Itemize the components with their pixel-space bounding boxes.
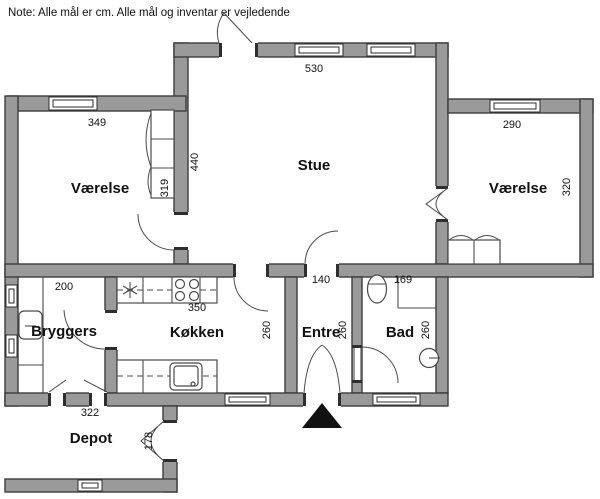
room-label-entre: Entre xyxy=(302,324,340,341)
door-arc-entre-stue xyxy=(305,231,338,264)
room-label-depot: Depot xyxy=(70,430,113,447)
window-icon xyxy=(6,285,17,307)
window-icon xyxy=(6,335,17,357)
opening-bryggers-koekken xyxy=(104,310,118,350)
room-label-bad: Bad xyxy=(386,324,414,341)
jamb xyxy=(163,420,177,423)
jamb xyxy=(436,219,448,222)
room-label-koekken: Køkken xyxy=(170,324,224,341)
jamb xyxy=(174,212,188,215)
jamb xyxy=(338,393,341,406)
toilet-icon xyxy=(368,275,387,303)
jamb xyxy=(89,393,92,406)
dim-vest-width: 349 xyxy=(88,117,106,129)
wardrobe-icon xyxy=(448,236,500,265)
wall-stue-right xyxy=(436,43,448,264)
dim-bad-height: 260 xyxy=(420,321,432,339)
floor-plan: Note: Alle mål er cm. Alle mål og invent… xyxy=(0,0,600,499)
opening-stue-top-door xyxy=(219,42,258,58)
jamb xyxy=(105,310,117,313)
jamb xyxy=(303,393,306,406)
jamb xyxy=(48,393,51,406)
dim-bryggers-width: 200 xyxy=(55,281,73,293)
door-arc-front xyxy=(304,345,340,393)
jamb xyxy=(352,380,362,383)
wall-outer-left xyxy=(5,96,18,406)
window-icon xyxy=(490,100,540,112)
jamb xyxy=(104,393,107,406)
jamb xyxy=(436,186,448,189)
window-icon xyxy=(78,480,102,491)
door-arc-bad xyxy=(362,347,398,383)
room-label-vaerelse-vest: Værelse xyxy=(71,180,129,197)
door-arc-vest xyxy=(138,214,174,250)
dim-oest-width: 290 xyxy=(503,119,521,131)
window-icon xyxy=(225,394,270,405)
window-icon xyxy=(295,44,343,56)
dim-bad-width: 169 xyxy=(394,274,412,286)
dim-stue-width: 530 xyxy=(305,63,323,75)
jamb xyxy=(266,264,269,277)
floor-plan-svg: Note: Alle mål er cm. Alle mål og invent… xyxy=(0,0,600,499)
dim-oest-height: 320 xyxy=(561,178,573,196)
jamb xyxy=(219,43,222,57)
opening-koekken-stue xyxy=(233,263,269,278)
jamb xyxy=(336,264,339,277)
opening-entre-bad xyxy=(355,345,360,383)
opening-oest-door xyxy=(435,186,449,222)
door-leaf-depot-2 xyxy=(84,380,107,392)
jamb xyxy=(233,264,236,277)
jamb xyxy=(63,393,66,406)
kitchen-counter-top xyxy=(117,277,217,303)
wall-bad-right xyxy=(436,277,448,393)
dim-vest-height: 319 xyxy=(159,179,171,197)
window-icon xyxy=(367,44,415,56)
door-arc-koekken xyxy=(234,277,268,311)
jamb xyxy=(174,247,188,250)
jamb xyxy=(255,43,258,57)
wall-koekken-entre xyxy=(285,277,297,393)
dim-stue-height: 440 xyxy=(189,153,201,171)
opening-vest-door xyxy=(173,212,189,250)
jamb xyxy=(304,264,307,277)
dim-depot-door: 178 xyxy=(143,432,155,450)
window-icon xyxy=(373,394,420,405)
room-label-stue: Stue xyxy=(298,157,331,174)
dim-entre-width: 140 xyxy=(312,274,330,286)
opening-depot-door xyxy=(162,420,178,462)
dim-depot-width: 322 xyxy=(81,407,99,419)
window-icon xyxy=(49,97,97,110)
room-label-vaerelse-oest: Værelse xyxy=(489,180,547,197)
dim-entre-height: 260 xyxy=(337,321,349,339)
room-label-bryggers: Bryggers xyxy=(31,323,97,340)
sink-icon xyxy=(170,363,202,390)
wall-middle-band xyxy=(5,264,593,277)
dim-koekken-height: 260 xyxy=(261,321,273,339)
wall-outer-right xyxy=(580,99,593,277)
jamb xyxy=(163,459,177,462)
jamb xyxy=(105,347,117,350)
door-leaf-depot-1 xyxy=(49,380,66,392)
note-text: Note: Alle mål er cm. Alle mål og invent… xyxy=(8,7,290,19)
dim-koekken-width: 350 xyxy=(188,302,206,314)
jamb xyxy=(352,345,362,348)
